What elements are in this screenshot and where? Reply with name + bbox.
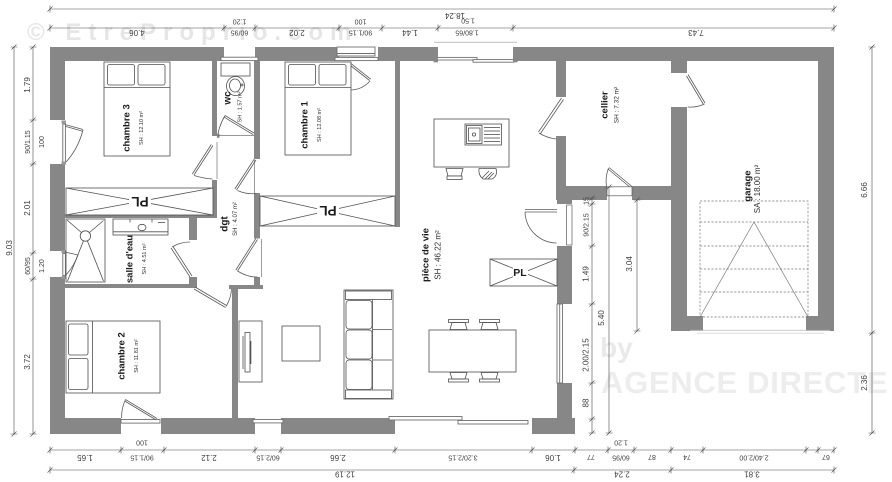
svg-text:AGENCE DIRECTE: AGENCE DIRECTE bbox=[601, 365, 888, 400]
svg-text:chambre 1: chambre 1 bbox=[300, 101, 311, 149]
svg-text:SA : 18.00 m²: SA : 18.00 m² bbox=[753, 164, 762, 213]
svg-text:salle d'eau: salle d'eau bbox=[125, 235, 136, 283]
svg-text:12.19: 12.19 bbox=[334, 470, 355, 479]
svg-text:1.65: 1.65 bbox=[77, 453, 93, 462]
svg-text:100: 100 bbox=[355, 18, 367, 25]
svg-text:SH : 7.32 m²: SH : 7.32 m² bbox=[614, 86, 621, 123]
svg-text:PL: PL bbox=[131, 194, 148, 209]
svg-text:60/95: 60/95 bbox=[231, 29, 249, 36]
svg-text:100: 100 bbox=[39, 136, 46, 148]
svg-text:100: 100 bbox=[136, 439, 148, 446]
svg-text:90/2.15: 90/2.15 bbox=[584, 213, 591, 236]
svg-text:1.79: 1.79 bbox=[23, 77, 32, 93]
svg-text:3.04: 3.04 bbox=[625, 256, 634, 272]
svg-text:5.40: 5.40 bbox=[597, 310, 606, 326]
svg-text:SH : 4.07 m²: SH : 4.07 m² bbox=[233, 202, 239, 236]
svg-text:2.01: 2.01 bbox=[23, 200, 32, 216]
svg-text:pièce de vie: pièce de vie bbox=[421, 228, 432, 282]
svg-text:74: 74 bbox=[683, 453, 691, 460]
svg-text:1.20: 1.20 bbox=[233, 18, 247, 25]
svg-text:wc: wc bbox=[223, 91, 234, 106]
svg-text:90/1.15: 90/1.15 bbox=[130, 454, 153, 461]
svg-text:© EtreProprio.com: © EtreProprio.com bbox=[27, 19, 358, 46]
svg-text:1.20: 1.20 bbox=[39, 259, 46, 273]
svg-text:SH : 4.51 m²: SH : 4.51 m² bbox=[142, 243, 148, 274]
svg-text:60/95: 60/95 bbox=[612, 454, 630, 461]
svg-text:67: 67 bbox=[822, 453, 830, 460]
svg-text:PL: PL bbox=[319, 203, 336, 218]
svg-text:dgt: dgt bbox=[220, 216, 231, 232]
svg-text:2.24: 2.24 bbox=[614, 470, 630, 479]
svg-text:1.06: 1.06 bbox=[545, 453, 561, 462]
svg-text:87: 87 bbox=[648, 453, 656, 460]
svg-text:88: 88 bbox=[582, 398, 591, 407]
svg-text:60/2.15: 60/2.15 bbox=[256, 454, 279, 461]
svg-text:2.66: 2.66 bbox=[330, 453, 346, 462]
svg-text:6.66: 6.66 bbox=[860, 182, 869, 198]
svg-text:4.06: 4.06 bbox=[129, 28, 145, 37]
svg-text:77: 77 bbox=[587, 453, 595, 460]
svg-text:60/95: 60/95 bbox=[25, 257, 32, 275]
svg-text:PL: PL bbox=[513, 267, 527, 279]
svg-text:1.50: 1.50 bbox=[461, 17, 475, 24]
svg-text:1.44: 1.44 bbox=[402, 28, 418, 37]
svg-text:cellier: cellier bbox=[600, 91, 611, 119]
svg-text:chambre 3: chambre 3 bbox=[122, 104, 133, 152]
svg-text:garage: garage bbox=[743, 170, 754, 201]
svg-text:SH : 12.08 m²: SH : 12.08 m² bbox=[317, 108, 323, 142]
svg-text:9.03: 9.03 bbox=[5, 240, 14, 256]
svg-text:by: by bbox=[600, 332, 633, 363]
svg-text:3.81: 3.81 bbox=[744, 470, 760, 479]
svg-text:2.36: 2.36 bbox=[860, 375, 869, 391]
svg-text:2.12: 2.12 bbox=[201, 453, 217, 462]
svg-text:7.43: 7.43 bbox=[688, 28, 704, 37]
svg-text:2.02: 2.02 bbox=[289, 28, 305, 37]
svg-text:1.49: 1.49 bbox=[582, 266, 591, 282]
svg-text:3.72: 3.72 bbox=[23, 354, 32, 370]
svg-text:chambre 2: chambre 2 bbox=[117, 332, 128, 380]
svg-text:90/1.15: 90/1.15 bbox=[25, 130, 32, 153]
svg-text:1.80/65: 1.80/65 bbox=[455, 29, 478, 36]
svg-text:SH : 46.22 m²: SH : 46.22 m² bbox=[434, 230, 443, 280]
svg-text:2.40/2.00: 2.40/2.00 bbox=[739, 454, 768, 461]
svg-text:.15: .15 bbox=[584, 197, 591, 207]
svg-text:3.20/2.15: 3.20/2.15 bbox=[448, 454, 477, 461]
svg-text:SH : 12.10 m²: SH : 12.10 m² bbox=[139, 111, 145, 145]
svg-text:SH : 1.57 m²: SH : 1.57 m² bbox=[238, 91, 244, 122]
svg-text:1.20: 1.20 bbox=[614, 439, 628, 446]
svg-text:2.00/2.15: 2.00/2.15 bbox=[582, 338, 591, 372]
svg-text:90/1.15: 90/1.15 bbox=[349, 29, 372, 36]
svg-text:SH : 11.81 m²: SH : 11.81 m² bbox=[134, 339, 140, 373]
